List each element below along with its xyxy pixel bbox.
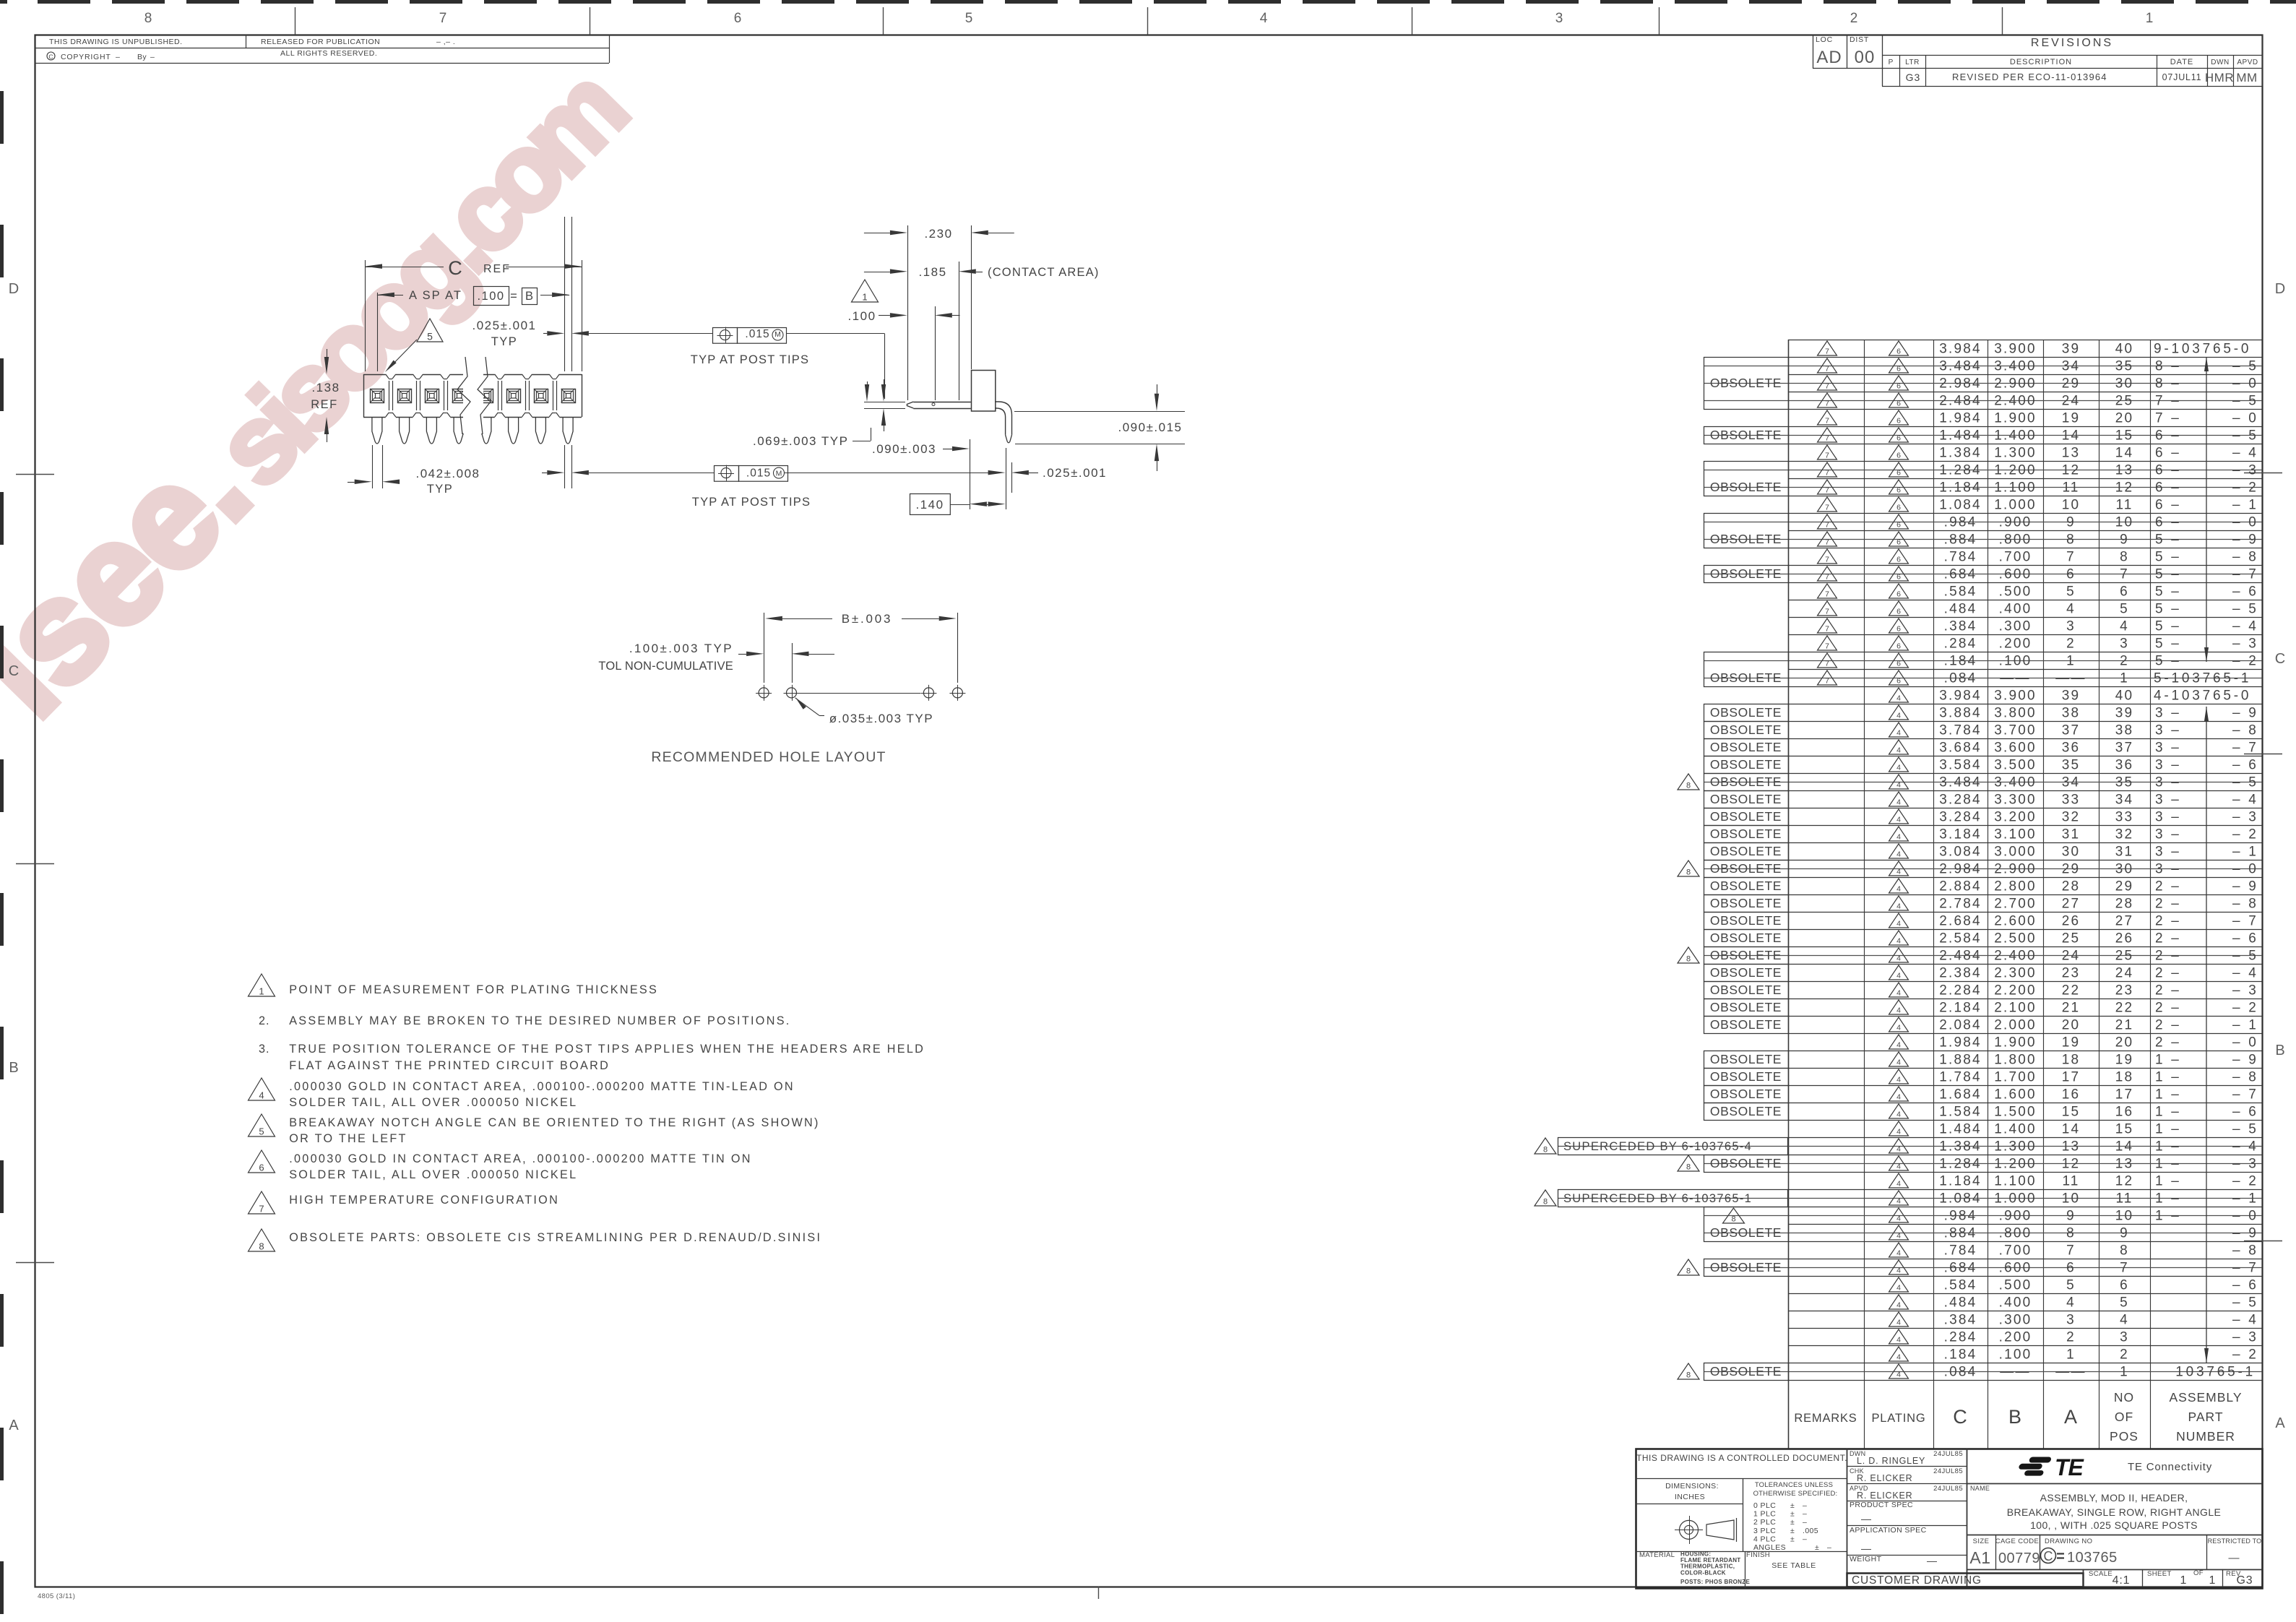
svg-text:4: 4 [1896,1076,1901,1084]
svg-text:7: 7 [439,11,447,26]
svg-text:PART: PART [2188,1410,2223,1424]
svg-text:.884: .884 [1944,1226,1977,1241]
svg-text:1: 1 [2209,1574,2216,1587]
svg-text:2: 2 [2120,654,2129,669]
svg-text:3.084: 3.084 [1939,845,1982,860]
svg-text:14: 14 [2062,1122,2081,1137]
svg-text:9: 9 [2066,515,2076,530]
svg-text:1: 1 [2180,1574,2187,1587]
svg-text:ASSEMBLY, MOD II, HEADER,: ASSEMBLY, MOD II, HEADER, [2040,1492,2188,1504]
svg-text:10: 10 [2115,1209,2134,1224]
svg-text:8 –: 8 – [2155,359,2181,374]
svg-text:3.500: 3.500 [1994,758,2037,773]
svg-text:4: 4 [1896,1128,1901,1136]
svg-text:1.000: 1.000 [1994,1191,2037,1207]
svg-text:3.700: 3.700 [1994,723,2037,738]
svg-text:.300: .300 [1999,619,2032,634]
svg-text:±: ± [1790,1510,1795,1519]
svg-text:8: 8 [259,1241,264,1252]
svg-text:7: 7 [1825,348,1829,356]
svg-text:4: 4 [1896,902,1901,911]
svg-text:1: 1 [2066,654,2076,669]
svg-text:22: 22 [2115,1001,2134,1016]
svg-text:M: M [776,470,782,478]
svg-text:1 –: 1 – [2155,1122,2181,1137]
svg-text:–: – [1803,1501,1807,1510]
svg-text:DWN: DWN [2211,59,2229,66]
svg-text:– 3: – 3 [2232,983,2258,998]
svg-text:5: 5 [965,11,973,26]
svg-text:G3: G3 [2237,1574,2253,1587]
svg-text:2.400: 2.400 [1994,949,2037,964]
svg-text:POS: POS [2110,1429,2139,1444]
svg-text:6: 6 [1896,590,1901,599]
svg-text:24JUL85: 24JUL85 [1933,1467,1963,1475]
svg-text:4: 4 [1896,1180,1901,1189]
svg-text:C: C [48,53,53,61]
svg-text:10: 10 [2062,1191,2081,1207]
svg-text:19: 19 [2062,1035,2081,1051]
svg-text:NUMBER: NUMBER [2176,1429,2235,1444]
svg-text:– 5: – 5 [2232,1295,2258,1311]
svg-text:21: 21 [2115,1018,2134,1033]
svg-text:.185: .185 [918,265,946,279]
svg-text:CUSTOMER DRAWING: CUSTOMER DRAWING [1852,1574,1982,1587]
svg-text:00779: 00779 [1998,1550,2040,1566]
svg-text:2.184: 2.184 [1939,1001,1982,1016]
svg-text:2.100: 2.100 [1994,1001,2037,1016]
svg-text:5 –: 5 – [2155,532,2181,548]
svg-text:1.184: 1.184 [1939,1174,1982,1189]
svg-text:– 3: – 3 [2232,810,2258,825]
svg-text:2.500: 2.500 [1994,931,2037,946]
svg-text:1.300: 1.300 [1994,1139,2037,1155]
svg-text:±: ± [1815,1543,1819,1552]
svg-text:16: 16 [2115,1105,2134,1120]
svg-text:LOC: LOC [1816,35,1833,44]
svg-text:12: 12 [2062,1157,2081,1172]
svg-text:.484: .484 [1944,602,1977,617]
svg-text:6: 6 [1896,400,1901,408]
svg-text:OBSOLETE: OBSOLETE [1710,740,1782,754]
svg-text:3: 3 [2066,619,2076,634]
svg-text:OBSOLETE: OBSOLETE [1710,913,1782,928]
svg-text:7: 7 [1825,400,1829,408]
svg-text:4: 4 [1896,798,1901,807]
svg-text:OBSOLETE: OBSOLETE [1710,844,1782,858]
svg-text:– 0: – 0 [2232,1209,2258,1224]
svg-text:2 –: 2 – [2155,949,2181,964]
svg-text:29: 29 [2115,879,2134,894]
svg-text:.884: .884 [1944,532,1977,548]
svg-text:OF: OF [2193,1569,2204,1577]
svg-text:– 9: – 9 [2232,879,2258,894]
svg-text:4: 4 [1896,972,1901,980]
svg-text:6: 6 [1896,556,1901,564]
svg-text:20: 20 [2062,1018,2081,1033]
svg-text:—: — [1861,1543,1871,1554]
svg-text:– ,– .: – ,– . [436,38,455,46]
svg-text:28: 28 [2062,879,2081,894]
svg-text:SHEET: SHEET [2147,1570,2172,1578]
svg-text:34: 34 [2115,793,2134,808]
svg-text:C: C [9,663,19,679]
svg-text:– 3: – 3 [2232,637,2258,652]
svg-text:3 –: 3 – [2155,810,2181,825]
svg-text:35: 35 [2115,359,2134,374]
svg-text:INCHES: INCHES [1675,1493,1705,1501]
svg-text:OBSOLETE: OBSOLETE [1710,861,1782,876]
svg-text:8: 8 [1543,1198,1548,1207]
svg-text:1.900: 1.900 [1994,1035,2037,1051]
svg-text:4: 4 [1896,1024,1901,1032]
svg-text:3: 3 [2066,1313,2076,1328]
svg-text:29: 29 [2062,862,2081,877]
svg-text:NO: NO [2114,1390,2134,1405]
svg-text:6: 6 [1896,660,1901,668]
svg-text:2.800: 2.800 [1994,879,2037,894]
svg-text:– 0: – 0 [2232,515,2258,530]
svg-text:2.300: 2.300 [1994,966,2037,981]
svg-text:6: 6 [1896,486,1901,495]
svg-text:34: 34 [2062,775,2081,790]
svg-text:2.900: 2.900 [1994,376,2037,392]
svg-text:– 5: – 5 [2232,1122,2258,1137]
svg-text:1.984: 1.984 [1939,411,1982,426]
svg-text:1.784: 1.784 [1939,1070,1982,1085]
svg-text:OBSOLETE: OBSOLETE [1710,1104,1782,1118]
svg-text:6 –: 6 – [2155,463,2181,478]
svg-text:5 –: 5 – [2155,637,2181,652]
svg-text:A: A [9,1418,19,1433]
svg-text:2.284: 2.284 [1939,983,1982,998]
svg-text:1.200: 1.200 [1994,463,2037,478]
svg-text:COPYRIGHT: COPYRIGHT [61,53,111,61]
svg-text:5: 5 [259,1126,264,1137]
svg-text:37: 37 [2115,741,2134,756]
svg-text:– 4: – 4 [2232,1139,2258,1155]
svg-text:.100: .100 [1999,654,2032,669]
svg-text:– 9: – 9 [2232,706,2258,721]
svg-text:±: ± [1790,1535,1795,1543]
svg-text:30: 30 [2115,862,2134,877]
svg-text:REF: REF [311,398,338,411]
svg-text:MATERIAL: MATERIAL [1639,1551,1675,1559]
svg-text:12: 12 [2062,463,2081,478]
svg-text:3.800: 3.800 [1994,706,2037,721]
svg-text:4: 4 [1896,920,1901,928]
svg-text:– 7: – 7 [2232,567,2258,582]
svg-text:4: 4 [1896,937,1901,946]
svg-text:–: – [1803,1510,1807,1519]
svg-text:D: D [9,281,19,297]
svg-text:3 –: 3 – [2155,741,2181,756]
svg-text:OBSOLETE: OBSOLETE [1710,757,1782,772]
svg-text:6: 6 [1896,504,1901,512]
svg-text:8: 8 [1686,1163,1691,1172]
svg-text:OTHERWISE SPECIFIED:: OTHERWISE SPECIFIED: [1753,1490,1838,1498]
svg-text:07JUL11: 07JUL11 [2162,72,2202,82]
svg-text:ALL RIGHTS RESERVED.: ALL RIGHTS RESERVED. [280,49,377,58]
svg-text:SOLDER TAIL, ALL OVER .000050: SOLDER TAIL, ALL OVER .000050 NICKEL [289,1168,577,1181]
svg-text:8: 8 [1731,1215,1735,1224]
svg-text:.090±.003: .090±.003 [872,442,936,456]
svg-text:C: C [2275,651,2285,667]
svg-text:24: 24 [2062,394,2081,409]
svg-text:.230: .230 [924,227,952,241]
svg-text:2 PLC: 2 PLC [1753,1518,1776,1527]
svg-text:18: 18 [2062,1053,2081,1068]
svg-text:4: 4 [259,1090,264,1101]
svg-text:1.900: 1.900 [1994,411,2037,426]
svg-text:2 –: 2 – [2155,1035,2181,1051]
svg-text:.184: .184 [1944,654,1977,669]
svg-text:OBSOLETE: OBSOLETE [1710,532,1782,546]
svg-text:8: 8 [1686,782,1691,790]
svg-text:5 –: 5 – [2155,602,2181,617]
svg-text:1.384: 1.384 [1939,446,1982,461]
svg-text:24JUL85: 24JUL85 [1933,1485,1963,1493]
svg-text:P: P [1889,59,1894,66]
svg-text:OBSOLETE: OBSOLETE [1710,1260,1782,1274]
svg-text:1 –: 1 – [2155,1139,2181,1155]
svg-text:– 2: – 2 [2232,1001,2258,1016]
svg-text:REVISED PER ECO-11-013964: REVISED PER ECO-11-013964 [1952,72,2107,82]
svg-text:36: 36 [2115,758,2134,773]
svg-text:14: 14 [2115,1139,2134,1155]
svg-text:.284: .284 [1944,637,1977,652]
svg-text:3.900: 3.900 [1994,342,2037,357]
svg-text:OF: OF [2115,1410,2133,1424]
svg-text:4: 4 [1896,1197,1901,1206]
svg-text:19: 19 [2062,411,2081,426]
svg-text:5-103765-1: 5-103765-1 [2154,671,2251,686]
svg-text:2 –: 2 – [2155,879,2181,894]
svg-text:8: 8 [2120,1243,2129,1259]
svg-text:4: 4 [1896,1093,1901,1102]
svg-text:2 –: 2 – [2155,897,2181,912]
svg-text:0 PLC: 0 PLC [1753,1501,1776,1510]
svg-text:OBSOLETE PARTS: OBSOLETE CIS S: OBSOLETE PARTS: OBSOLETE CIS STREAMLININ… [289,1231,821,1244]
svg-text:.015: .015 [745,328,769,340]
svg-text:4: 4 [1896,816,1901,824]
svg-text:3.284: 3.284 [1939,810,1982,825]
svg-text:4: 4 [1896,1284,1901,1293]
svg-text:–: – [116,53,120,61]
svg-text:33: 33 [2062,793,2081,808]
svg-text:1 –: 1 – [2155,1087,2181,1103]
svg-text:.984: .984 [1944,515,1977,530]
svg-text:4: 4 [1896,1006,1901,1015]
svg-text:4: 4 [1896,1353,1901,1362]
svg-text:5: 5 [2066,584,2076,600]
svg-text:39: 39 [2062,342,2081,357]
svg-text:5 –: 5 – [2155,550,2181,565]
svg-text:1.484: 1.484 [1939,1122,1982,1137]
svg-text:5 –: 5 – [2155,619,2181,634]
svg-text:.400: .400 [1999,602,2032,617]
svg-text:4805 (3/11): 4805 (3/11) [38,1592,75,1600]
svg-text:25: 25 [2115,949,2134,964]
svg-text:.984: .984 [1944,1209,1977,1224]
svg-text:39: 39 [2062,689,2081,704]
svg-text:OBSOLETE: OBSOLETE [1710,896,1782,910]
svg-text:3.184: 3.184 [1939,827,1982,842]
svg-text:6: 6 [1896,365,1901,374]
svg-text:4: 4 [1896,746,1901,755]
svg-text:SOLDER TAIL, ALL OVER .000050: SOLDER TAIL, ALL OVER .000050 NICKEL [289,1096,577,1109]
svg-text:– 3: – 3 [2232,463,2258,478]
svg-text:COLOR-BLACK: COLOR-BLACK [1680,1569,1726,1576]
svg-text:.084: .084 [1944,671,1977,686]
svg-text:3.484: 3.484 [1939,775,1982,790]
svg-text:1: 1 [259,986,264,997]
svg-text:DIMENSIONS:: DIMENSIONS: [1665,1482,1719,1491]
svg-text:4: 4 [1896,764,1901,772]
svg-text:M: M [774,330,781,339]
svg-text:.700: .700 [1999,550,2032,565]
svg-text:HMR: HMR [2205,71,2234,85]
svg-text:3.984: 3.984 [1939,689,1982,704]
svg-text:15: 15 [2062,1105,2081,1120]
svg-text:CAGE CODE: CAGE CODE [1995,1537,2040,1545]
svg-text:TRUE POSITION TOLERANCE OF THE: TRUE POSITION TOLERANCE OF THE POST TIPS… [289,1043,925,1056]
svg-text:– 6: – 6 [2232,758,2258,773]
svg-text:13: 13 [2115,1157,2134,1172]
svg-text:4: 4 [1896,1215,1901,1223]
svg-text:2.884: 2.884 [1939,879,1982,894]
svg-text:6: 6 [1896,452,1901,460]
svg-text:4: 4 [1896,1319,1901,1327]
svg-text:1.884: 1.884 [1939,1053,1982,1068]
svg-text:TE Connectivity: TE Connectivity [2128,1461,2212,1473]
svg-text:DRAWING NO: DRAWING NO [2045,1537,2092,1545]
svg-text:40: 40 [2115,689,2134,704]
svg-text:.384: .384 [1944,1313,1977,1328]
svg-text:22: 22 [2062,983,2081,998]
svg-text:8: 8 [1686,1371,1691,1380]
svg-text:7: 7 [1825,417,1829,426]
svg-text:11: 11 [2062,480,2079,496]
svg-text:– 8: – 8 [2232,723,2258,738]
svg-text:3.200: 3.200 [1994,810,2037,825]
svg-text:8: 8 [1686,1267,1691,1276]
svg-text:3 –: 3 – [2155,862,2181,877]
svg-text:1 –: 1 – [2155,1209,2181,1224]
svg-text:1 –: 1 – [2155,1105,2181,1120]
svg-text:17: 17 [2115,1087,2134,1103]
svg-text:OBSOLETE: OBSOLETE [1710,965,1782,980]
svg-text:A: A [2064,1406,2077,1428]
svg-text:– 1: – 1 [2232,845,2258,860]
svg-text:3.284: 3.284 [1939,793,1982,808]
svg-text:3 –: 3 – [2155,845,2181,860]
svg-text:ASSEMBLY MAY BE BROKEN TO THE: ASSEMBLY MAY BE BROKEN TO THE DESIRED NU… [289,1014,790,1027]
svg-text:6: 6 [1896,434,1901,443]
svg-text:7 –: 7 – [2155,411,2181,426]
svg-text:=: = [510,290,517,303]
svg-text:1.684: 1.684 [1939,1087,1982,1103]
svg-text:3.400: 3.400 [1994,359,2037,374]
svg-text:8: 8 [144,11,152,26]
svg-text:TOL NON-CUMULATIVE: TOL NON-CUMULATIVE [598,660,733,673]
svg-text:WEIGHT: WEIGHT [1850,1555,1882,1563]
svg-text:REMARKS: REMARKS [1794,1412,1857,1425]
svg-text:– 8: – 8 [2232,1243,2258,1259]
svg-text:4: 4 [1896,1371,1901,1379]
svg-text:103765-1: 103765-1 [2175,1365,2256,1380]
svg-text:6: 6 [1896,538,1901,547]
svg-text:– 7: – 7 [2232,1261,2258,1276]
svg-text:3.984: 3.984 [1939,342,1982,357]
svg-text:TYP: TYP [491,335,518,348]
svg-text:1 –: 1 – [2155,1191,2181,1207]
svg-text:.090±.015: .090±.015 [1118,420,1182,434]
svg-text:6: 6 [1896,382,1901,391]
svg-text:B: B [9,1060,18,1076]
svg-text:3.884: 3.884 [1939,706,1982,721]
svg-text:7: 7 [1825,625,1829,634]
svg-text:3 –: 3 – [2155,793,2181,808]
svg-text:D: D [2275,281,2285,297]
svg-text:– 7: – 7 [2232,914,2258,929]
svg-text:11: 11 [2115,498,2133,513]
svg-text:FINISH: FINISH [1746,1551,1770,1559]
svg-text:1: 1 [2120,1365,2129,1380]
svg-text:3: 3 [2120,637,2129,652]
svg-text:6: 6 [1896,677,1901,686]
svg-text:3.: 3. [259,1043,270,1056]
svg-text:– 5: – 5 [2232,428,2258,444]
svg-text:RESTRICTED TO: RESTRICTED TO [2208,1537,2262,1545]
svg-text:1: 1 [2146,11,2154,26]
svg-text:3 –: 3 – [2155,758,2181,773]
svg-text:APVD: APVD [2237,59,2258,66]
svg-text:5 –: 5 – [2155,584,2181,600]
svg-text:2 –: 2 – [2155,1001,2181,1016]
svg-text:.284: .284 [1944,1330,1977,1345]
svg-text:OBSOLETE: OBSOLETE [1710,879,1782,893]
svg-text:4: 4 [1896,989,1901,998]
svg-text:2.484: 2.484 [1939,949,1982,964]
svg-text:1: 1 [2120,671,2129,686]
svg-text:9: 9 [2120,1226,2129,1241]
svg-text:– 2: – 2 [2232,1174,2258,1189]
svg-text:POINT OF MEASUREMENT FOR PLATI: POINT OF MEASUREMENT FOR PLATING THICKNE… [289,983,658,996]
svg-text:2.700: 2.700 [1994,897,2037,912]
svg-text:1.000: 1.000 [1994,498,2037,513]
svg-text:7: 7 [1825,504,1829,512]
svg-text:BREAKAWAY NOTCH ANGLE CAN BE O: BREAKAWAY NOTCH ANGLE CAN BE ORIENTED TO… [289,1116,820,1129]
svg-text:.784: .784 [1944,550,1977,565]
svg-text:1 –: 1 – [2155,1157,2181,1172]
svg-text:.784: .784 [1944,1243,1977,1259]
svg-text:RECOMMENDED HOLE LAYOUT: RECOMMENDED HOLE LAYOUT [651,749,886,765]
svg-text:25: 25 [2062,931,2081,946]
svg-text:R. ELICKER: R. ELICKER [1857,1473,1912,1483]
svg-text:– 7: – 7 [2232,1087,2258,1103]
svg-text:1.700: 1.700 [1994,1070,2037,1085]
svg-text:31: 31 [2115,845,2134,860]
svg-text:1 PLC: 1 PLC [1753,1510,1776,1519]
svg-text:4: 4 [1896,1058,1901,1067]
svg-text:100, , WITH .025 SQUARE POSTS: 100, , WITH .025 SQUARE POSTS [2030,1519,2198,1531]
svg-text:38: 38 [2062,706,2081,721]
svg-text:C: C [448,257,462,279]
svg-text:2.200: 2.200 [1994,983,2037,998]
svg-text:5: 5 [427,331,433,342]
svg-text:LTR: LTR [1905,59,1920,66]
